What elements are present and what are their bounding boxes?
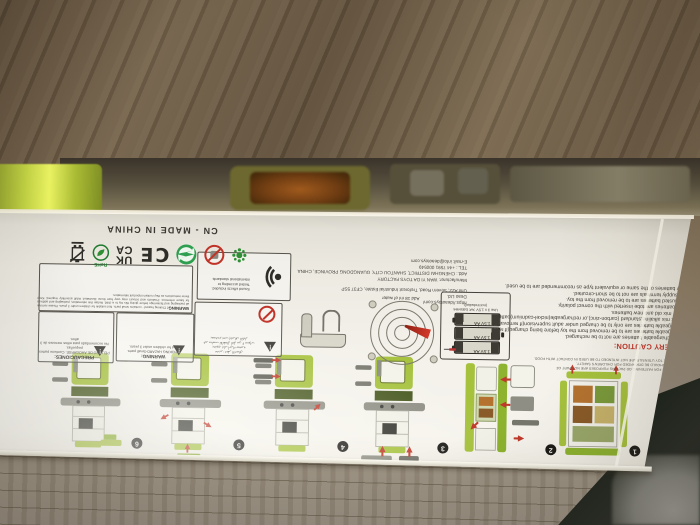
product-photo xyxy=(410,170,444,196)
product-photo xyxy=(510,166,690,202)
photo-of-toy-box: 1 2 xyxy=(0,0,700,525)
product-photo-food xyxy=(250,172,350,204)
box-side-panel-shadowed xyxy=(60,158,700,216)
product-photo xyxy=(458,168,488,194)
panel-lighting-shade xyxy=(0,213,700,471)
